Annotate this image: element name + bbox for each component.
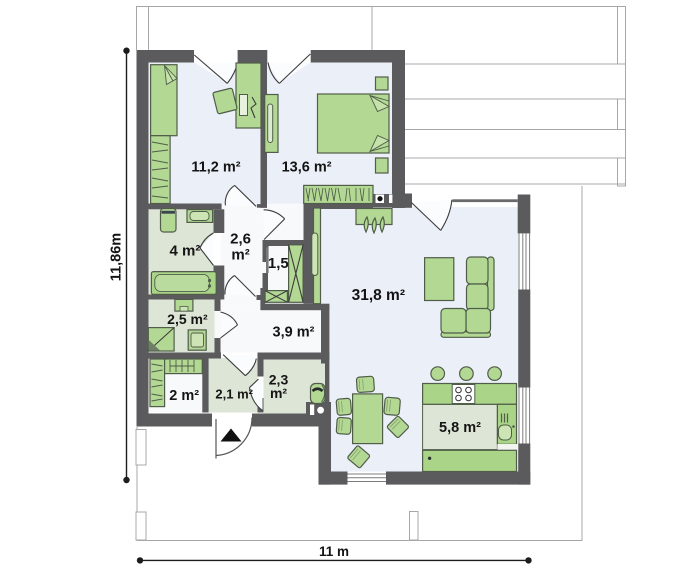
svg-text:13,6 m²: 13,6 m² <box>282 160 332 176</box>
svg-text:5,8 m²: 5,8 m² <box>439 420 481 436</box>
svg-text:2,5 m²: 2,5 m² <box>167 311 208 327</box>
svg-text:2 m²: 2 m² <box>169 388 199 404</box>
svg-text:2,1 m²: 2,1 m² <box>215 387 253 402</box>
svg-text:31,8 m²: 31,8 m² <box>352 287 405 304</box>
svg-text:m²: m² <box>231 247 249 264</box>
svg-text:11,86m: 11,86m <box>109 233 125 281</box>
svg-text:4 m²: 4 m² <box>169 242 200 259</box>
svg-text:m²: m² <box>270 385 287 401</box>
svg-text:11,2 m²: 11,2 m² <box>191 160 240 176</box>
svg-text:11 m: 11 m <box>319 544 349 559</box>
svg-text:2,6: 2,6 <box>230 231 251 248</box>
svg-text:1,5: 1,5 <box>268 255 289 272</box>
svg-text:3,9 m²: 3,9 m² <box>273 325 315 341</box>
